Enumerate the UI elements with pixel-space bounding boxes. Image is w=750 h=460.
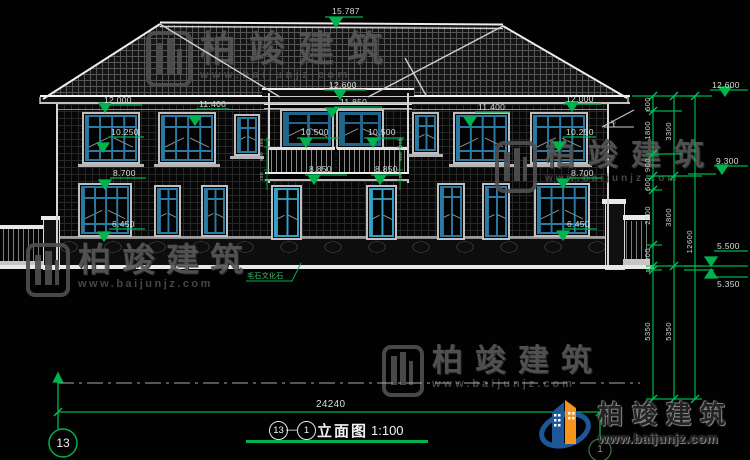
center-head-elevation: 11.850 — [340, 97, 367, 107]
center-slab-right: 8.850 — [375, 164, 398, 174]
dim-600b: 600 — [643, 177, 652, 191]
level-eave: 12.600 — [712, 80, 740, 90]
balcony-dim-900-l: 900 — [259, 152, 264, 161]
dim-3800: 3800 — [664, 208, 673, 227]
balcony-dim-150-l: 150 — [259, 172, 264, 181]
total-width-dim: 24240 — [316, 399, 345, 410]
left-head2-elevation: 11.400 — [199, 99, 226, 109]
dim-900: 900 — [643, 158, 652, 172]
dim-1800: 1800 — [643, 121, 652, 140]
center-sill-right: 10.500 — [368, 127, 396, 137]
stone-material-label: 毛石文化石 — [247, 271, 284, 281]
center-eave-elevation: 12.600 — [329, 80, 357, 90]
title-dash: — — [286, 424, 297, 436]
axis-bubble-13: 13 — [52, 436, 74, 450]
right-sill2-elevation: 10.250 — [566, 127, 594, 137]
left-eave-elevation: 12.000 — [104, 95, 132, 105]
level-low-b: 5.350 — [717, 279, 740, 289]
dim-3300: 3300 — [664, 122, 673, 141]
dim-5350b: 5350 — [664, 322, 673, 341]
dim-5350a: 5350 — [643, 322, 652, 341]
brand-logo-icon — [538, 394, 592, 456]
dim-12600-total: 12600 — [685, 230, 694, 253]
title-circle-1: 1 — [297, 421, 316, 440]
dim-900b: 900 — [643, 248, 652, 262]
brand-logo: 柏竣建筑 www.baijunjz.com — [538, 390, 750, 460]
balcony-dim-300: 300 — [398, 138, 403, 147]
drawing-title: 立面图 — [317, 420, 368, 441]
brand-logo-url: www.baijunjz.com — [598, 431, 718, 446]
left-head1-elevation: 8.700 — [113, 168, 136, 178]
roof-slope-label: 45 — [610, 120, 616, 126]
right-head1-elevation: 8.700 — [571, 168, 594, 178]
right-eave-elevation: 12.000 — [566, 94, 594, 104]
center-slab-left: 8.850 — [309, 164, 332, 174]
left-sill1-elevation: 6.450 — [112, 219, 135, 229]
dim-600: 600 — [643, 97, 652, 111]
level-mid: 9.300 — [716, 156, 739, 166]
title-underline — [246, 440, 428, 443]
brand-logo-text: 柏竣建筑 — [598, 401, 734, 429]
dim-150: 150 — [646, 262, 652, 273]
balcony-dim-150: 150 — [398, 172, 403, 181]
right-sill1-elevation: 6.450 — [567, 219, 590, 229]
elevation-drawing-canvas: 15.787 12.600 11.850 10.500 10.500 8.850… — [0, 0, 750, 460]
left-sill2-elevation: 10.250 — [111, 127, 139, 137]
ridge-elevation-label: 15.787 — [332, 6, 360, 16]
drawing-scale: 1:100 — [371, 423, 404, 438]
right-head2-elevation: 11.400 — [478, 102, 505, 112]
level-low-a: 5.500 — [717, 241, 740, 251]
balcony-dim-300-l: 300 — [259, 138, 264, 147]
dim-2300: 2300 — [643, 206, 652, 225]
balcony-dim-900: 900 — [398, 152, 403, 161]
center-sill-left: 10.500 — [301, 127, 329, 137]
